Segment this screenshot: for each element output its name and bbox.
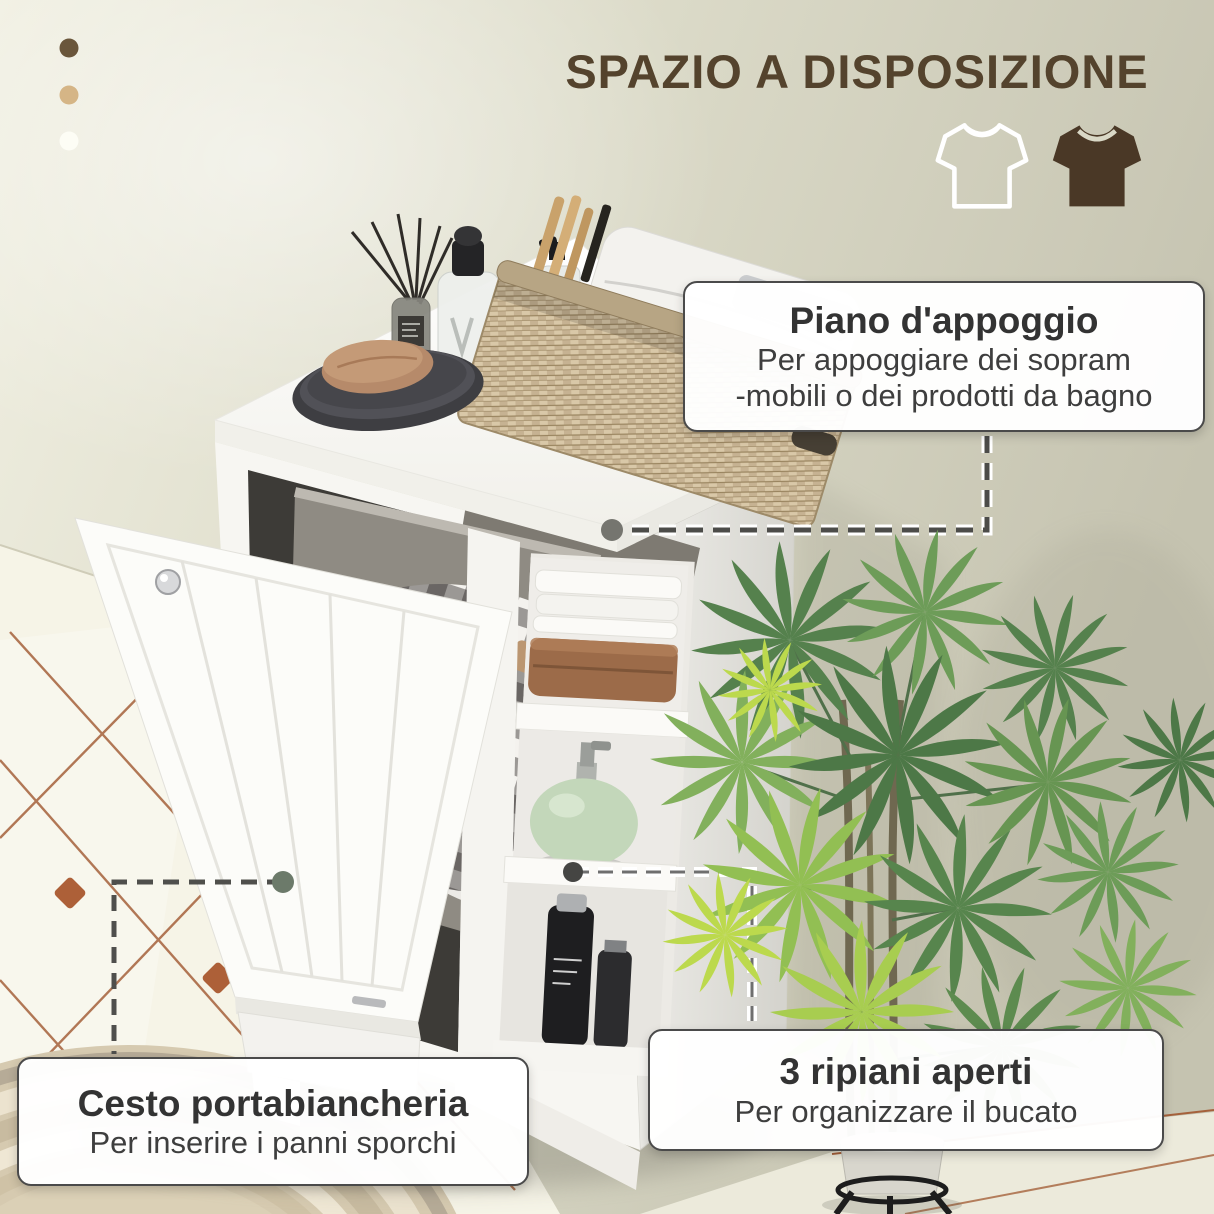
connector-piano-dot <box>601 519 623 541</box>
callout-ripiani-subtitle: Per organizzare il bucato <box>735 1094 1078 1130</box>
dot-tan <box>60 86 79 105</box>
callout-cesto-title: Cesto portabiancheria <box>78 1082 469 1126</box>
dot-white <box>60 132 79 151</box>
callout-ripiani-aperti: 3 ripiani aperti Per organizzare il buca… <box>648 1029 1164 1151</box>
door-knob <box>156 570 180 594</box>
white-towels <box>533 570 682 640</box>
callout-piano-title: Piano d'appoggio <box>790 299 1099 343</box>
connector-ripiani-dot <box>563 862 583 882</box>
brown-towel <box>528 637 679 703</box>
connector-cesto-dot <box>272 871 294 893</box>
callout-piano-line1: Per appoggiare dei sopram <box>757 342 1131 378</box>
dot-dark-brown <box>60 39 79 58</box>
callout-cesto-subtitle: Per inserire i panni sporchi <box>89 1125 456 1161</box>
page-title: SPAZIO A DISPOSIZIONE <box>500 44 1214 99</box>
callout-piano-line2: -mobili o dei prodotti da bagno <box>735 378 1152 414</box>
callout-cesto-portabiancheria: Cesto portabiancheria Per inserire i pan… <box>17 1057 529 1186</box>
callout-ripiani-title: 3 ripiani aperti <box>780 1050 1033 1094</box>
callout-piano-appoggio: Piano d'appoggio Per appoggiare dei sopr… <box>683 281 1205 432</box>
product-infographic: SPAZIO A DISPOSIZIONE Piano d'appoggio P… <box>0 0 1214 1214</box>
